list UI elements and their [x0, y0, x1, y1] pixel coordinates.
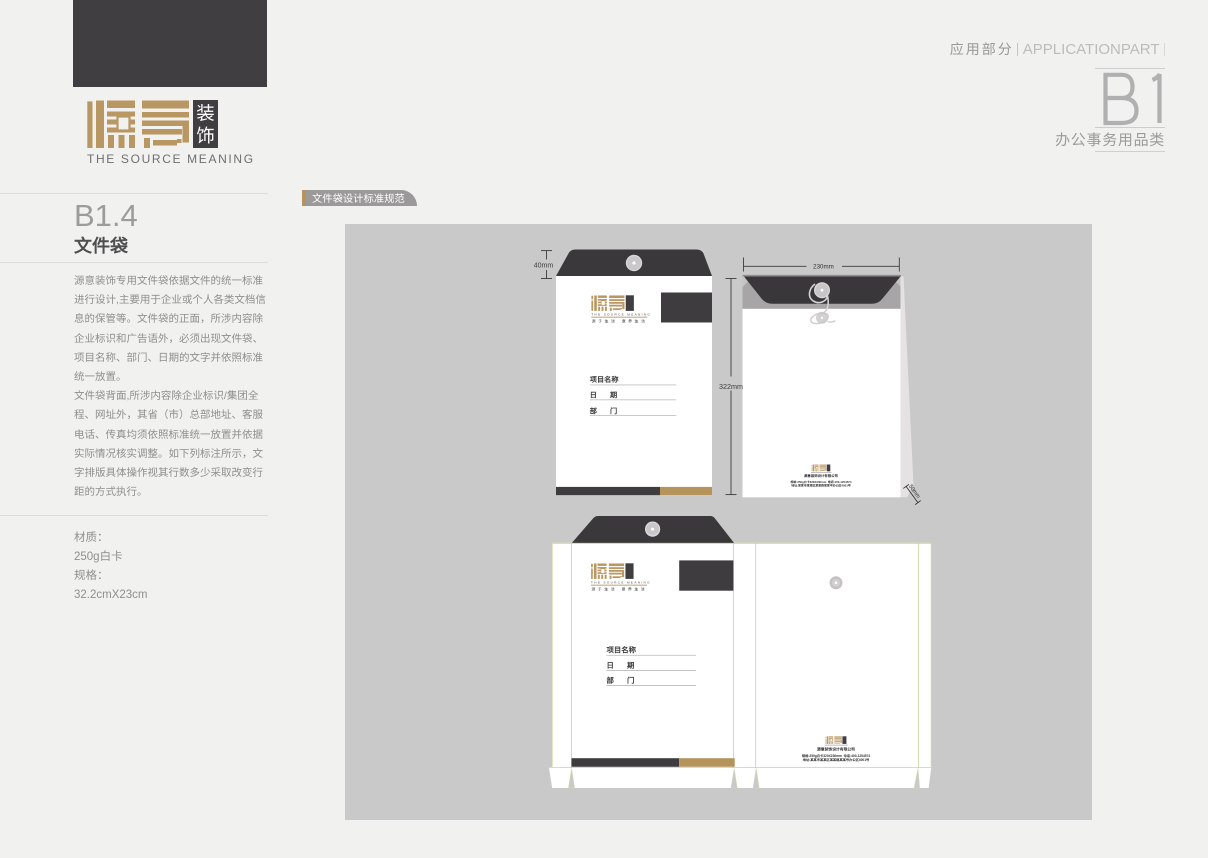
- svg-text:期: 期: [609, 391, 617, 401]
- svg-text:日: 日: [590, 391, 597, 401]
- svg-text:门: 门: [627, 675, 634, 686]
- svg-text:40mm: 40mm: [534, 263, 554, 270]
- svg-text:门: 门: [610, 406, 617, 416]
- svg-text:期: 期: [627, 660, 634, 671]
- svg-text:饰: 饰: [196, 122, 215, 148]
- svg-text:230mm: 230mm: [813, 263, 834, 270]
- svg-text:日: 日: [607, 660, 614, 671]
- svg-text:项目名称: 项目名称: [590, 375, 620, 385]
- svg-text:322mm: 322mm: [719, 382, 743, 391]
- svg-text:项目名称: 项目名称: [607, 645, 637, 656]
- svg-text:部: 部: [607, 675, 615, 686]
- svg-text:部: 部: [590, 406, 597, 416]
